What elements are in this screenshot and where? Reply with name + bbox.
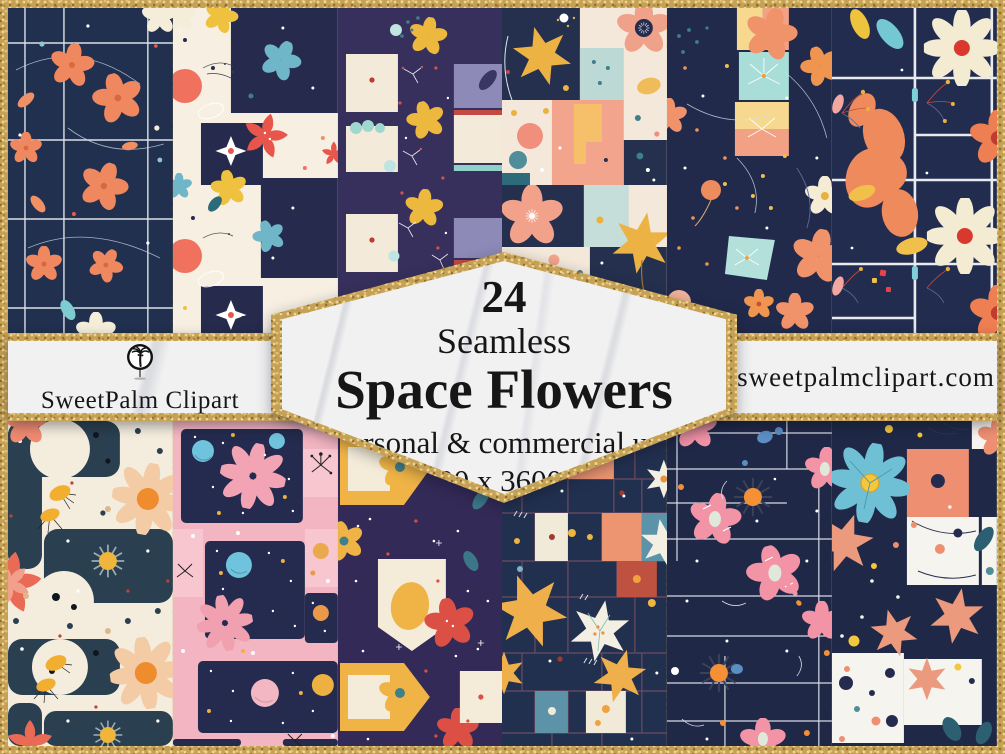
brand-block: SweetPalm Clipart: [8, 341, 272, 413]
palm-tree-icon: [123, 342, 157, 386]
badge-usage: personal & commercial use: [334, 422, 674, 464]
pattern-tile-navy-grid-coral: [8, 8, 173, 341]
clipart-product-cover: SweetPalm Clipart sweetpalmclipart.com 2…: [0, 0, 1005, 754]
pattern-tile-cream-blobs-daisies: [8, 421, 173, 746]
brand-name: SweetPalm Clipart: [41, 388, 239, 413]
badge-count: 24: [482, 275, 527, 320]
badge-title: Space Flowers: [335, 362, 673, 418]
hexagon-badge: 24 Seamless Space Flowers personal & com…: [271, 252, 737, 503]
pattern-tile-navy-white-patch-blue-daisy: [832, 421, 997, 746]
pattern-tile-navy-window-daisies: [832, 8, 997, 341]
website-block: sweetpalmclipart.com: [735, 341, 997, 413]
website-url: sweetpalmclipart.com: [737, 362, 995, 393]
badge-subtitle: Seamless: [437, 320, 571, 362]
